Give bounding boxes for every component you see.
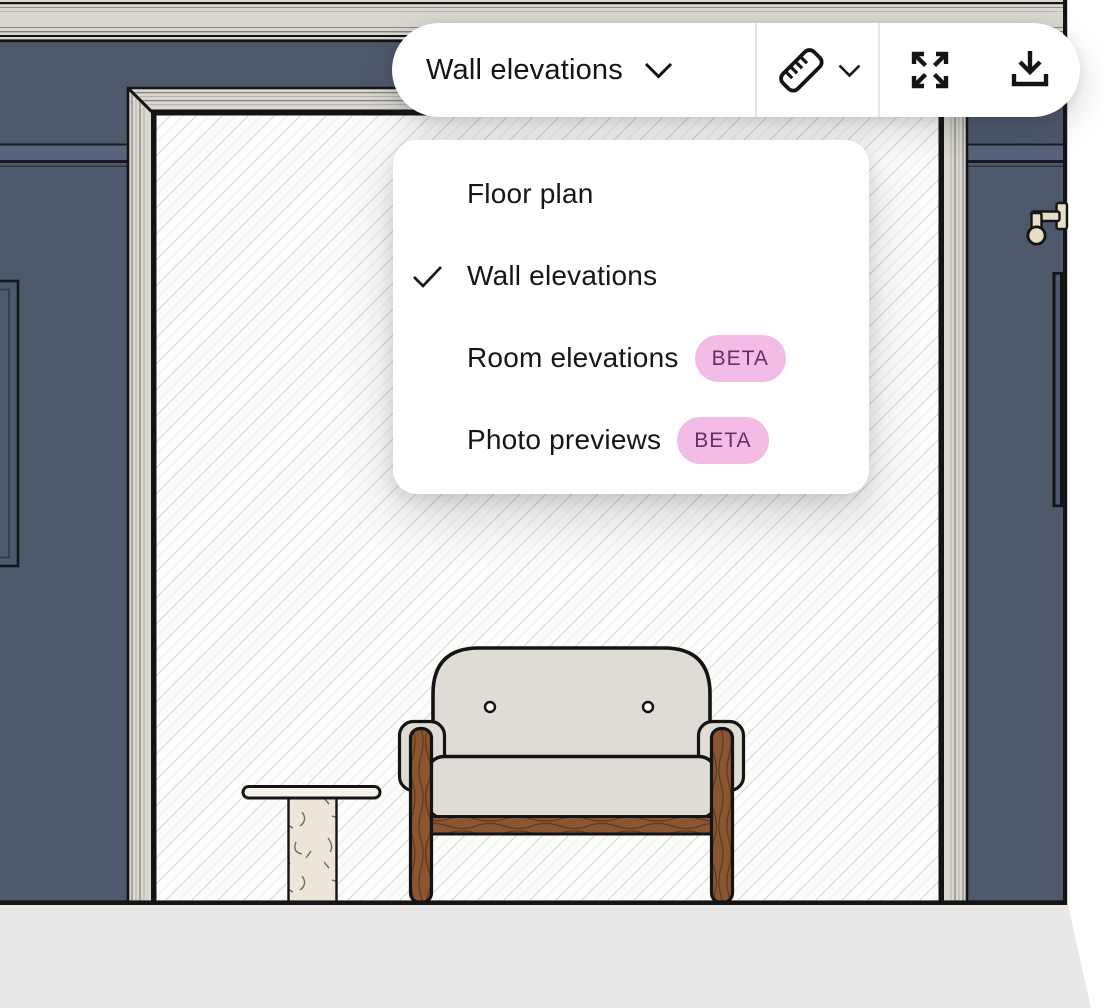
drawing-right-edge [1063, 0, 1067, 905]
download-button[interactable] [980, 23, 1080, 117]
check-icon [410, 263, 445, 290]
download-icon [1007, 47, 1053, 93]
menu-item-room-elevations[interactable]: Room elevations BETA [393, 317, 869, 399]
menu-item-label: Room elevations [467, 342, 679, 374]
menu-item-photo-previews[interactable]: Photo previews BETA [393, 399, 869, 481]
menu-item-floor-plan[interactable]: Floor plan [393, 153, 869, 235]
armchair-seat [427, 757, 716, 819]
armchair-button [485, 702, 495, 712]
fullscreen-button[interactable] [880, 23, 980, 117]
view-toolbar: Wall elevations [392, 23, 1080, 117]
chevron-down-icon [643, 61, 674, 80]
toolbar-right-group [880, 23, 1080, 117]
expand-arrows-icon [907, 47, 953, 93]
armchair-button [643, 702, 653, 712]
floor-line [0, 900, 1067, 905]
view-mode-dropdown[interactable]: Wall elevations [392, 23, 755, 117]
menu-item-wall-elevations[interactable]: Wall elevations [393, 235, 869, 317]
menu-item-label: Wall elevations [467, 260, 657, 292]
armchair-leg [411, 729, 432, 903]
beta-badge: BETA [677, 417, 768, 464]
menu-item-label: Floor plan [467, 178, 594, 210]
floor-section [0, 905, 1091, 1008]
armchair-stretcher [431, 817, 712, 835]
menu-item-label: Photo previews [467, 424, 661, 456]
ruler-icon [774, 43, 828, 97]
view-mode-menu: Floor plan Wall elevations Room elevatio… [393, 140, 869, 494]
armchair-leg [712, 729, 733, 903]
view-mode-label: Wall elevations [426, 54, 623, 87]
measure-tool-button[interactable] [757, 23, 878, 117]
chevron-down-icon [837, 63, 862, 78]
beta-badge: BETA [695, 335, 786, 382]
check-slot [410, 263, 467, 290]
app-viewport: Wall elevations [0, 0, 1104, 1008]
